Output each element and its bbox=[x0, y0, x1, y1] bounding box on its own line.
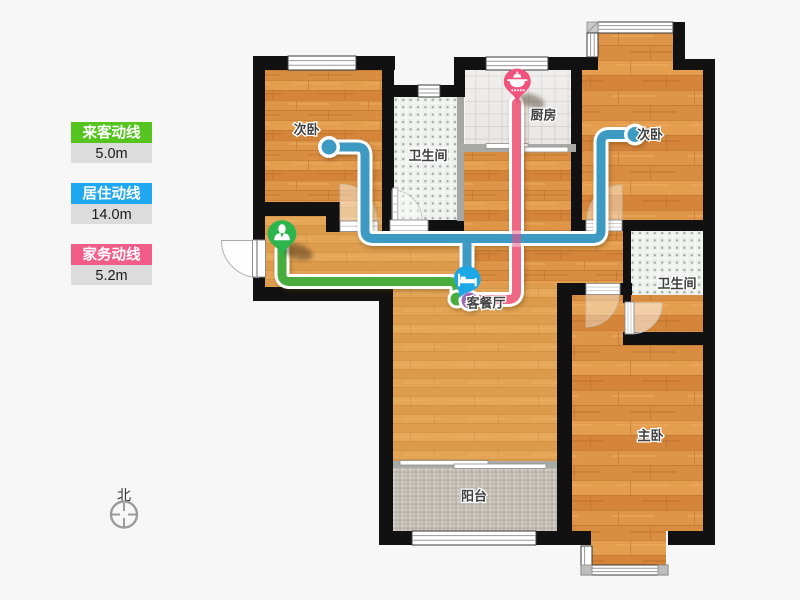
svg-text:客餐厅: 客餐厅 bbox=[466, 296, 505, 311]
svg-text:14.0m: 14.0m bbox=[91, 207, 131, 223]
svg-text:家务动线: 家务动线 bbox=[83, 246, 141, 264]
svg-text:主卧: 主卧 bbox=[637, 428, 663, 443]
svg-text:卫生间: 卫生间 bbox=[657, 276, 696, 291]
svg-text:阳台: 阳台 bbox=[461, 489, 487, 504]
svg-text:厨房: 厨房 bbox=[530, 108, 556, 123]
svg-text:居住动线: 居住动线 bbox=[83, 185, 141, 203]
svg-text:次卧: 次卧 bbox=[293, 122, 319, 137]
svg-text:5.0m: 5.0m bbox=[95, 146, 127, 162]
svg-text:来客动线: 来客动线 bbox=[82, 124, 141, 142]
svg-text:卫生间: 卫生间 bbox=[408, 148, 447, 163]
svg-text:次卧: 次卧 bbox=[637, 127, 663, 142]
svg-text:5.2m: 5.2m bbox=[95, 268, 127, 284]
